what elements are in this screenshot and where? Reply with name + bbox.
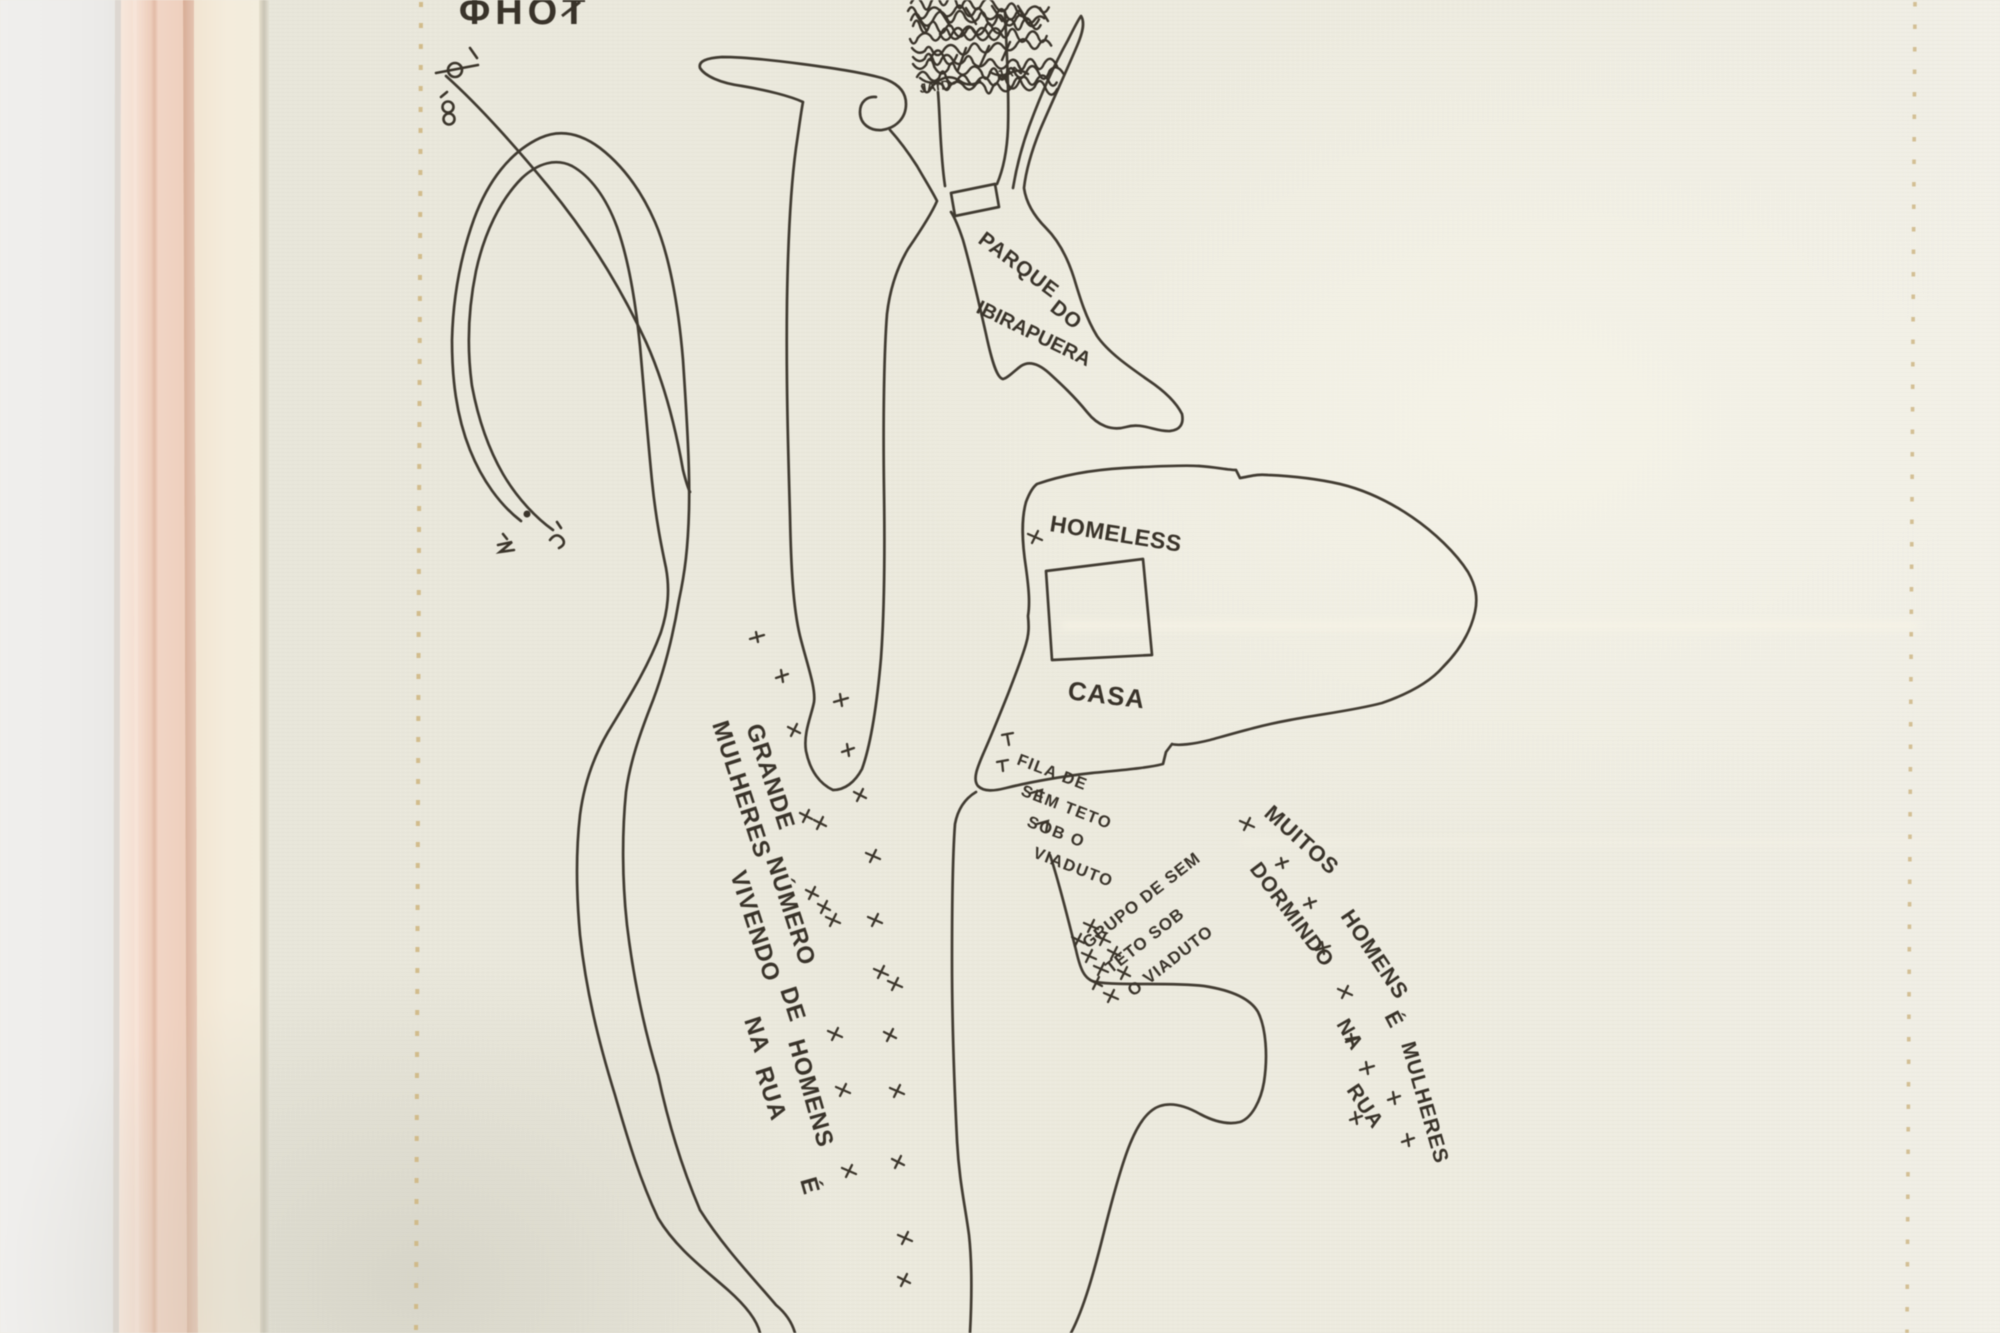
svg-text:ΦΗΟΤ: ΦΗΟΤ bbox=[459, 0, 590, 33]
